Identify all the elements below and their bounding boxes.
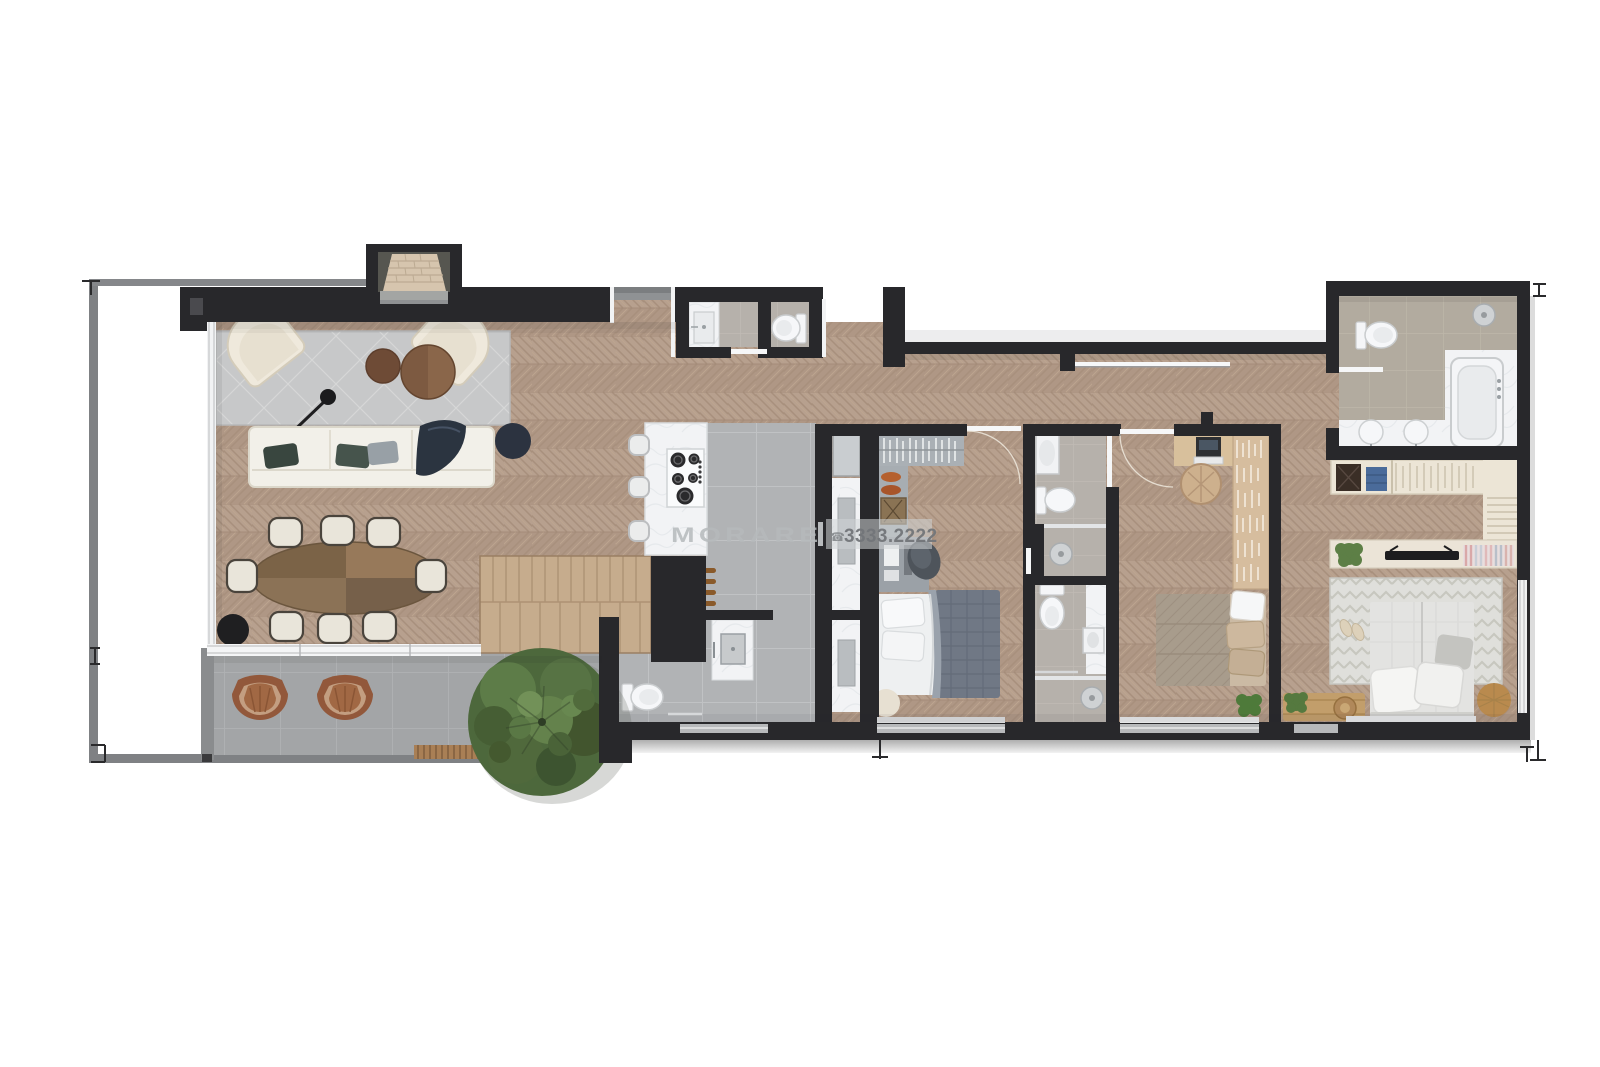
svg-text:MORARE: MORARE	[671, 523, 822, 547]
svg-text:3333.2222: 3333.2222	[844, 526, 937, 547]
svg-text:☎: ☎	[830, 530, 845, 544]
